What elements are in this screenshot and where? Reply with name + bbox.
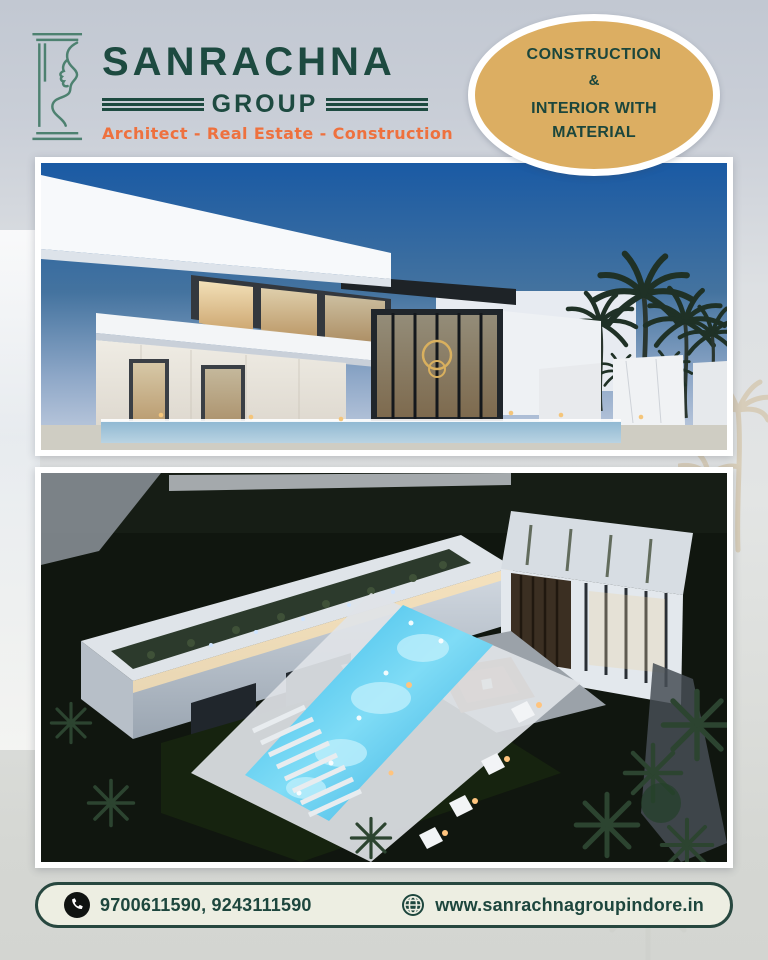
group-rule-right [326, 98, 428, 111]
badge-line-3: INTERIOR WITH [531, 97, 657, 120]
badge-line-4: MATERIAL [552, 121, 636, 144]
brand-name: SANRACHNA [102, 42, 428, 82]
brand-group-word: GROUP [204, 92, 327, 117]
badge-line-1: CONSTRUCTION [527, 46, 662, 64]
brand-group-row: GROUP [102, 92, 428, 117]
contact-bar: 9700611590, 9243111590 www.sanrachnagrou… [35, 882, 733, 928]
background-building-watermark [0, 230, 40, 750]
photo-villa-night-aerial [35, 467, 733, 868]
website-contact: www.sanrachnagroupindore.in [401, 893, 704, 917]
brand-header: SANRACHNA GROUP Architect - Real Estate … [28, 30, 428, 144]
villa-dusk-illustration [41, 163, 727, 450]
website-url: www.sanrachnagroupindore.in [435, 895, 704, 916]
photo-villa-dusk [35, 157, 733, 456]
phone-icon [64, 892, 90, 918]
brand-tagline: Architect - Real Estate - Construction [102, 124, 428, 143]
phone-numbers: 9700611590, 9243111590 [100, 895, 312, 916]
services-badge: CONSTRUCTION & INTERIOR WITH MATERIAL [468, 14, 720, 176]
poster: SANRACHNA GROUP Architect - Real Estate … [0, 0, 768, 960]
phone-contact: 9700611590, 9243111590 [64, 892, 312, 918]
badge-line-2: & [589, 72, 600, 89]
globe-icon [401, 893, 425, 917]
villa-night-illustration [41, 473, 727, 862]
group-rule-left [102, 98, 204, 111]
brand-text-block: SANRACHNA GROUP Architect - Real Estate … [102, 30, 428, 143]
column-face-logo-icon [28, 30, 94, 144]
